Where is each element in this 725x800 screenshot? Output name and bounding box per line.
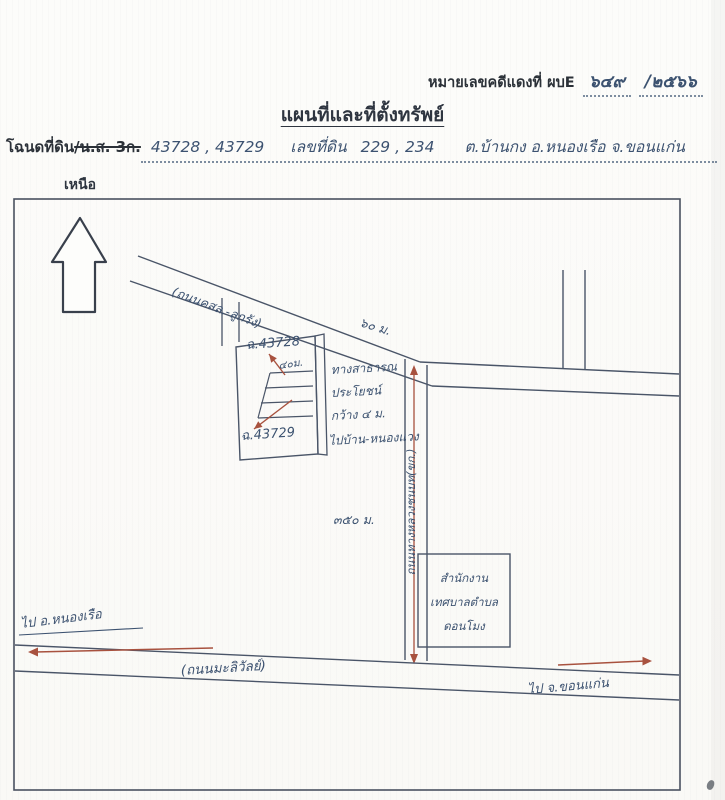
east-direction-arrow: [558, 661, 645, 665]
parcel-lower-label: ฉ.43729: [240, 425, 295, 444]
office-name-line-1: สำนักงาน: [440, 571, 489, 585]
diagonal-road-label: (ถนนคสล.-ลูกรัง): [170, 284, 264, 332]
strip-note-line-4: ไปบ้าน-หนองแวง: [328, 429, 420, 448]
east-direction-arrowhead: [643, 657, 653, 666]
deed-label: โฉนดที่ดิน: [6, 135, 74, 159]
east-road-lower-line: [432, 386, 679, 396]
strip-note-line-2: ประโยชน์: [330, 383, 384, 400]
pointer-arrowhead-upper: [269, 354, 277, 363]
map-border: [14, 199, 680, 790]
depth-40m-label: ๔๐ม.: [278, 357, 304, 372]
case-number-label: หมายเลขคดีแดงที่ ผบE: [428, 71, 575, 94]
distance-350m-label: ๓๕๐ ม.: [333, 512, 375, 527]
scan-artifact: [706, 779, 715, 790]
ns3k-label-struck: /น.ส. 3ก.: [74, 135, 141, 159]
west-destination-label: ไป อ.หนองเรือ: [20, 606, 104, 632]
strip-parcel-boundary: [315, 334, 327, 455]
page-title: แผนที่และที่ตั้งทรัพย์: [230, 100, 495, 130]
building-step-line-3: [261, 401, 313, 403]
scanned-document-page: หมายเลขคดีแดงที่ ผบE ๖๔๙ /๒๕๖๖ แผนที่และ…: [0, 0, 725, 800]
office-name-line-3: ดอนโมง: [443, 619, 486, 633]
office-name-line-2: เทศบาลตำบล: [430, 595, 499, 609]
building-step-line-1: [270, 371, 313, 373]
south-road-label: ถนนทางหลวงชนบท(ขก.): [404, 448, 418, 575]
case-number-value: ๖๔๙: [583, 68, 631, 97]
north-label: เหนือ: [52, 174, 108, 196]
north-arrow-icon: [52, 218, 106, 312]
building-step-line-4: [258, 416, 313, 418]
frontage-60m-label: ๖๐ ม.: [358, 315, 393, 339]
case-number-line: หมายเลขคดีแดงที่ ผบE ๖๔๙ /๒๕๖๖: [428, 68, 703, 97]
case-year-value: /๒๕๖๖: [639, 68, 703, 97]
strip-note-line-1: ทางสาธารณ: [330, 360, 398, 377]
parcel-number-label: เลขที่ดิน: [290, 134, 346, 159]
dimension-arrowhead-top: [410, 365, 418, 375]
parcel-upper-label: ฉ.43728: [245, 334, 300, 353]
strip-note-line-3: กว้าง ๔ ม.: [330, 406, 386, 423]
deed-numbers: 43728 , 43729: [151, 138, 264, 156]
west-direction-arrowhead: [28, 648, 38, 657]
west-direction-arrow: [35, 648, 213, 652]
building-step-edge: [258, 373, 270, 418]
east-road-upper-line: [420, 362, 679, 374]
property-location: ต.บ้านกง อ.หนองเรือ จ.ขอนแก่น: [465, 134, 685, 159]
deed-handwritten-fill: 43728 , 43729 เลขที่ดิน 229 , 234 ต.บ้าน…: [141, 134, 717, 163]
deed-info-line: โฉนดที่ดิน /น.ส. 3ก. 43728 , 43729 เลขที…: [6, 134, 717, 163]
map-canvas: (ถนนคสล.-ลูกรัง) ๖๐ ม. ฉ.43728 ๔๐ม. ฉ.43…: [13, 198, 681, 791]
highway-name-label: (ถนนมะลิวัลย์): [180, 658, 266, 679]
parcel-numbers: 229 , 234: [361, 138, 435, 156]
building-step-line-2: [265, 386, 313, 388]
